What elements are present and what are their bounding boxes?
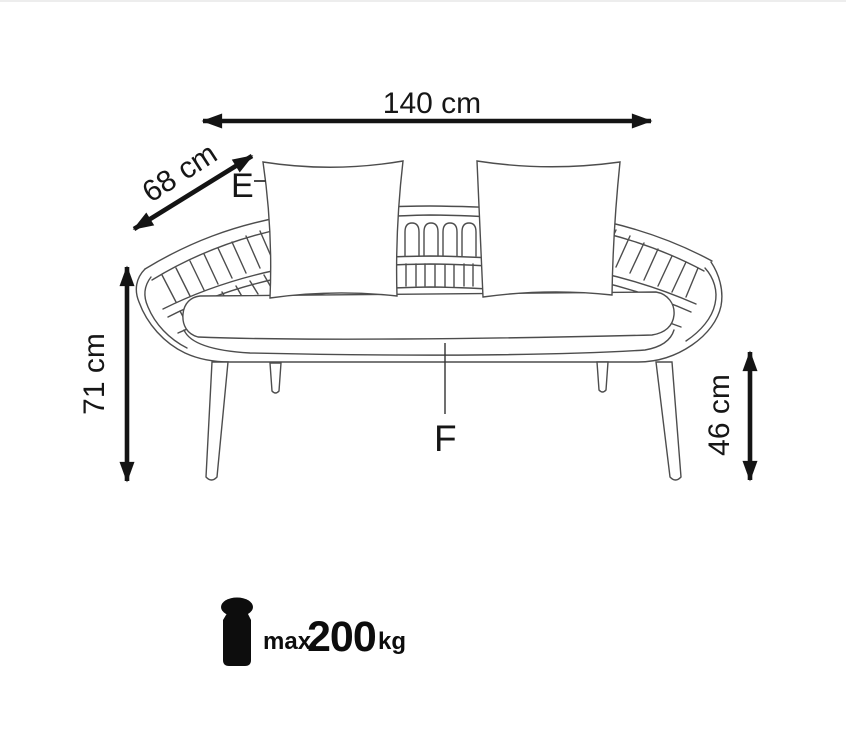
- right-pillow: [477, 161, 620, 297]
- weight-icon: [221, 598, 253, 667]
- base-frame-inner-right: [686, 268, 716, 341]
- front-right-leg: [656, 362, 681, 480]
- rear-left-leg: [270, 363, 281, 393]
- part-label-pillow-group: E: [231, 167, 266, 205]
- backrest-lower-slats: [406, 264, 473, 287]
- pillow-label: E: [231, 167, 254, 205]
- part-label-seat-group: F: [434, 343, 457, 459]
- backrest-arch-slats: [405, 223, 476, 256]
- height-dimension-label: 71 cm: [78, 333, 111, 415]
- dimension-width: 140 cm: [203, 87, 651, 121]
- dimension-seat-height: 46 cm: [703, 352, 750, 480]
- max-load-value: 200: [307, 613, 376, 661]
- furniture-dimension-drawing: E F 140 cm 68 cm 71 cm 46 cm max. 200 kg: [0, 0, 846, 756]
- max-load-unit: kg: [378, 628, 406, 655]
- diagram-canvas: E F 140 cm 68 cm 71 cm 46 cm max. 200 kg: [0, 0, 846, 756]
- left-armrest-slats-upper: [162, 231, 274, 302]
- seat-cushion: [183, 292, 674, 339]
- window-top-edge: [0, 0, 846, 2]
- dimension-height: 71 cm: [78, 267, 127, 481]
- rear-right-leg: [597, 362, 608, 392]
- left-pillow: [263, 161, 403, 298]
- width-dimension-label: 140 cm: [383, 87, 481, 120]
- max-load-group: max. 200 kg: [221, 598, 406, 667]
- seat-label: F: [434, 418, 457, 459]
- front-left-leg: [206, 362, 228, 480]
- seat-height-dimension-label: 46 cm: [703, 374, 736, 456]
- sofa-drawing: [136, 161, 722, 480]
